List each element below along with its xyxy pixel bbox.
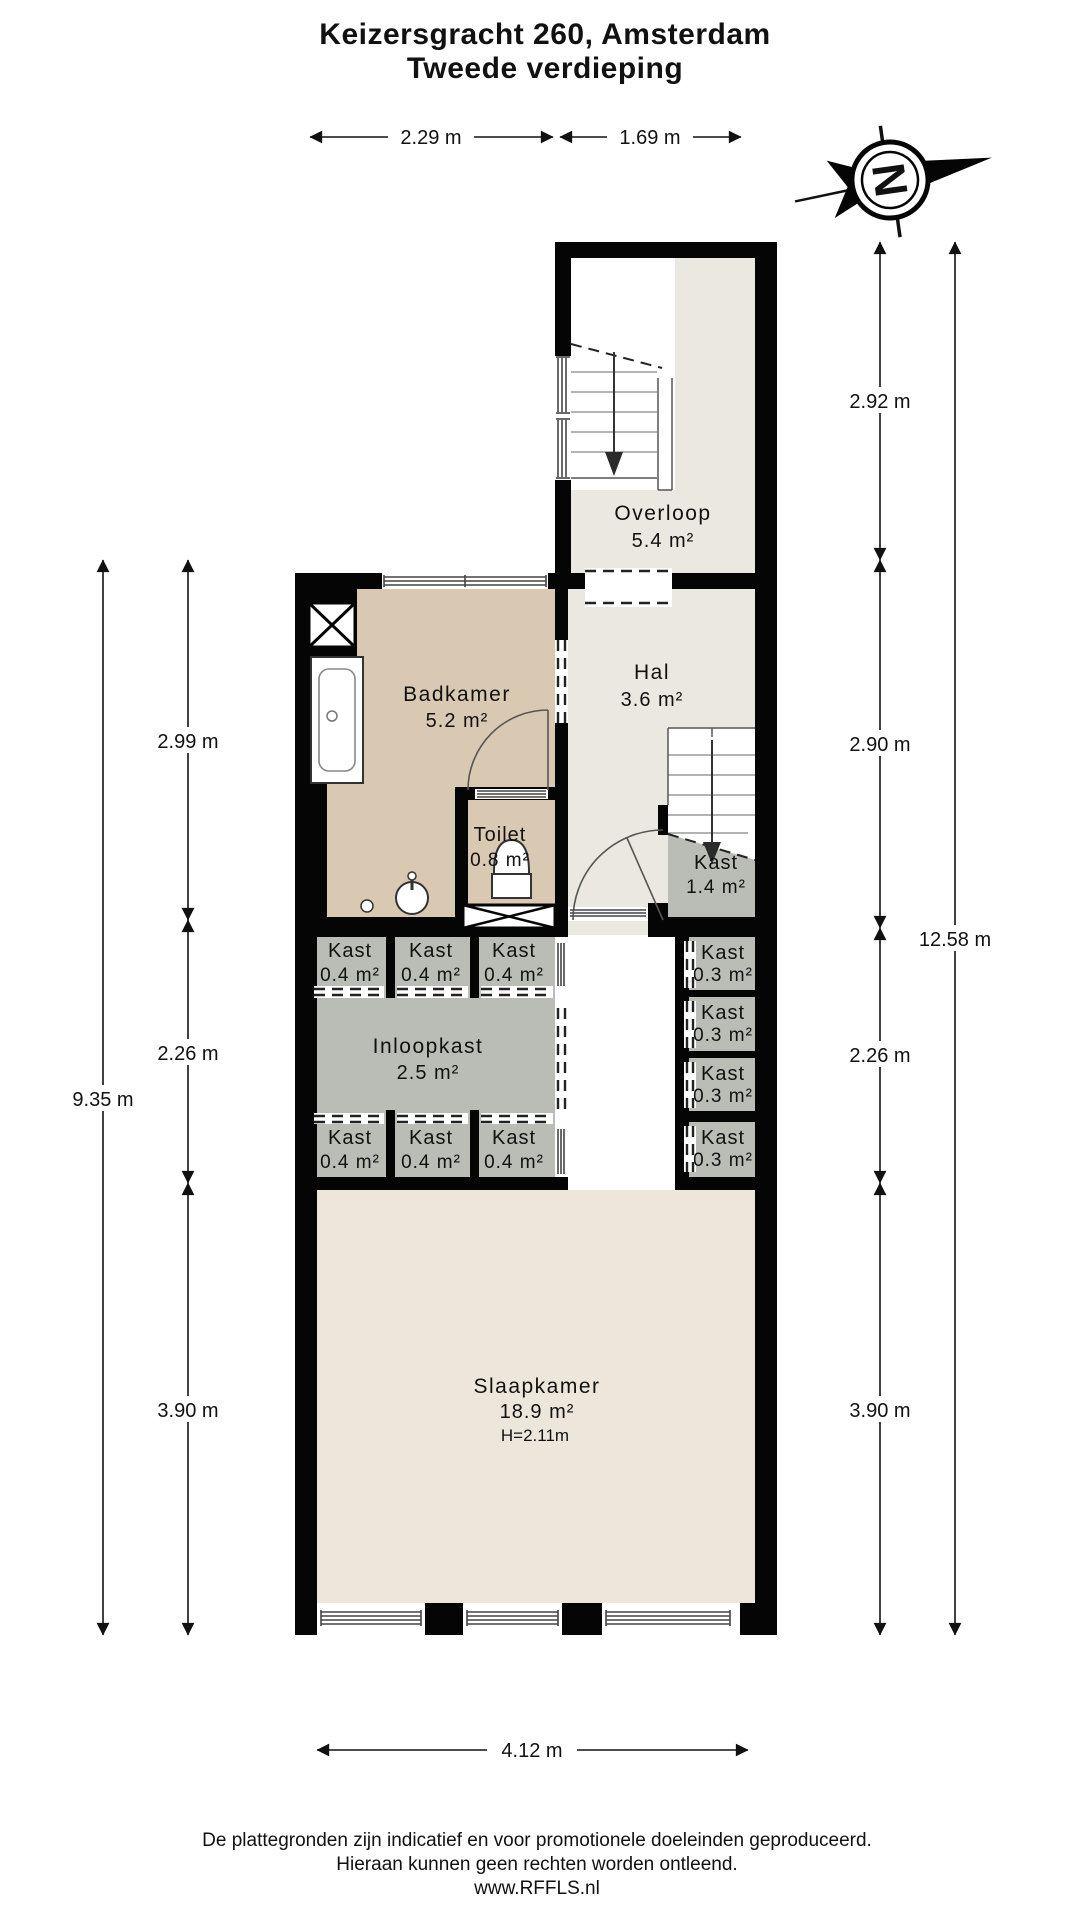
kast-lb3-label: Kast [492, 1127, 536, 1149]
title-address: Keizersgracht 260, Amsterdam [319, 18, 770, 51]
toilet-label: Toilet [474, 824, 527, 846]
compass-north-icon: N [786, 111, 1001, 251]
dim-top-1: 2.29 m [400, 127, 461, 149]
floorplan-page: Keizersgracht 260, Amsterdam Tweede verd… [0, 0, 1080, 1920]
footer-website: www.RFFLS.nl [473, 1878, 600, 1899]
kast-lb2-area: 0.4 m² [401, 1152, 461, 1173]
dim-left-1: 2.99 m [157, 731, 218, 753]
window-threshold-icon [568, 907, 648, 921]
window-facade-icons [317, 1603, 740, 1635]
window-toilet-icon [475, 789, 548, 799]
dim-right-4: 3.90 m [849, 1400, 910, 1422]
window-kast-bottom-icon [555, 1127, 568, 1176]
footer-disclaimer: De plattegronden zijn indicatief en voor… [202, 1830, 872, 1899]
title-floor: Tweede verdieping [407, 52, 683, 85]
badkamer-area: 5.2 m² [426, 710, 489, 732]
opening-inloopkast [555, 1008, 568, 1113]
inloopkast-label: Inloopkast [373, 1035, 484, 1058]
inloopkast-area: 2.5 m² [397, 1062, 460, 1084]
kast-lt2-area: 0.4 m² [401, 965, 461, 986]
kast-lt2-label: Kast [409, 940, 453, 962]
kast-lt3-label: Kast [492, 940, 536, 962]
kast-r1-area: 0.3 m² [693, 965, 753, 986]
kast-r4-label: Kast [701, 1127, 745, 1149]
window-badkamer-icon [382, 573, 548, 589]
footer-line-1: De plattegronden zijn indicatief en voor… [202, 1830, 872, 1851]
dim-right-2: 2.90 m [849, 734, 910, 756]
kast-lb2-label: Kast [409, 1127, 453, 1149]
bathtub-icon [311, 657, 363, 783]
dim-left-2: 2.26 m [157, 1043, 218, 1065]
kast-onder-trap-label: Kast [694, 852, 738, 874]
toilet-area: 0.8 m² [470, 850, 530, 871]
dim-right-outer: 12.58 m [919, 929, 991, 951]
opening-overloop-hal [585, 568, 672, 607]
kast-r3-label: Kast [701, 1063, 745, 1085]
slaapkamer-area: 18.9 m² [500, 1401, 575, 1423]
dim-right-1: 2.92 m [849, 391, 910, 413]
badkamer-label: Badkamer [403, 683, 511, 706]
kast-lt1-label: Kast [328, 940, 372, 962]
dim-left-outer: 9.35 m [72, 1089, 133, 1111]
kast-lb1-area: 0.4 m² [320, 1152, 380, 1173]
overloop-area: 5.4 m² [632, 530, 695, 552]
hal-area: 3.6 m² [621, 689, 684, 711]
dim-left-3: 3.90 m [157, 1400, 218, 1422]
stairs-upper [571, 258, 675, 490]
dim-right-3: 2.26 m [849, 1045, 910, 1067]
shaft-icon [309, 603, 355, 647]
hal-label: Hal [634, 661, 670, 684]
window-kast-top-icon [555, 941, 568, 988]
kast-onder-trap-area: 1.4 m² [686, 877, 746, 898]
kast-r3-area: 0.3 m² [693, 1086, 753, 1107]
slaapkamer-label: Slaapkamer [473, 1375, 600, 1398]
kast-r2-area: 0.3 m² [693, 1025, 753, 1046]
duct-icon [463, 905, 555, 928]
overloop-label: Overloop [614, 502, 711, 525]
kast-r2-label: Kast [701, 1002, 745, 1024]
dim-bottom: 4.12 m [501, 1740, 562, 1762]
opening-badkamer-hal [555, 640, 568, 723]
page-title: Keizersgracht 260, Amsterdam Tweede verd… [319, 18, 770, 85]
floorplan-svg: Keizersgracht 260, Amsterdam Tweede verd… [0, 0, 1080, 1920]
footer-line-2: Hieraan kunnen geen rechten worden ontle… [336, 1854, 737, 1875]
kast-lb3-area: 0.4 m² [484, 1152, 544, 1173]
kast-lt3-area: 0.4 m² [484, 965, 544, 986]
kast-lt1-area: 0.4 m² [320, 965, 380, 986]
dim-top-2: 1.69 m [619, 127, 680, 149]
kast-lb1-label: Kast [328, 1127, 372, 1149]
kast-r1-label: Kast [701, 942, 745, 964]
slaapkamer-height: H=2.11m [501, 1426, 569, 1445]
window-overloop-icon [555, 356, 571, 480]
kast-r4-area: 0.3 m² [693, 1150, 753, 1171]
